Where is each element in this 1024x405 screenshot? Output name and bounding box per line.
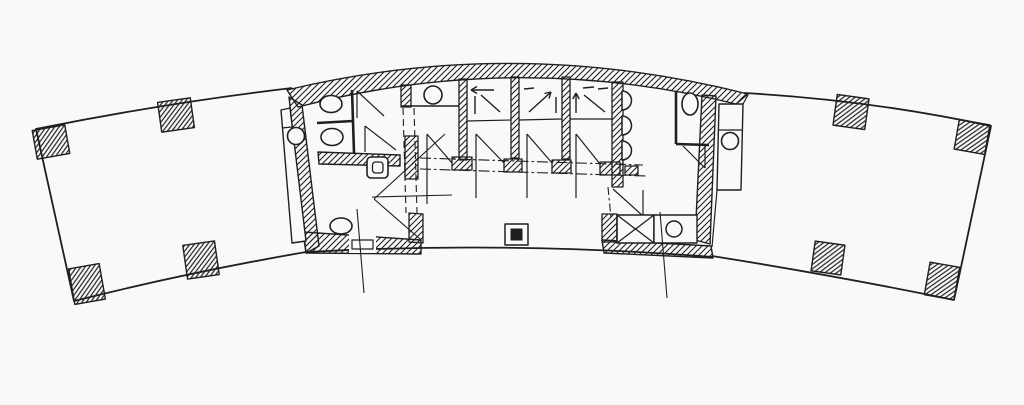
structural-column <box>32 125 70 159</box>
pier-lobby-west <box>405 136 418 179</box>
pier-service-room <box>401 85 411 107</box>
elevator-arrow <box>583 87 594 88</box>
structural-column <box>833 94 869 129</box>
floor-plan-svg <box>0 0 1024 405</box>
floor-plan <box>0 0 1024 405</box>
elevator-door-swing <box>576 134 600 164</box>
core-east-wall <box>695 95 716 244</box>
elevator-pier <box>459 79 467 160</box>
structural-column <box>924 262 959 300</box>
elevator-door-swing <box>527 134 552 163</box>
structural-column <box>183 241 219 279</box>
wall-return <box>625 166 638 175</box>
round-column <box>288 128 305 145</box>
door-jamb <box>452 157 472 170</box>
floor-marker-inner <box>511 229 523 241</box>
elevator-pier <box>562 77 570 159</box>
pier-lobby-south <box>409 213 423 243</box>
door-jamb <box>600 162 620 175</box>
elevator-arrow <box>529 92 551 112</box>
urinal <box>622 91 632 110</box>
door-swing <box>365 126 396 150</box>
elevator-arrow <box>584 95 605 112</box>
accessible-toilet <box>330 218 352 234</box>
door-threshold <box>352 240 373 249</box>
structural-column <box>158 98 195 132</box>
elevator-arrow <box>481 95 500 112</box>
round-column <box>722 133 739 150</box>
elevator-pier <box>511 77 519 158</box>
door-jamb <box>504 159 522 172</box>
elevator-arrow <box>524 88 534 89</box>
door-swing <box>357 91 384 116</box>
structural-column <box>954 120 990 155</box>
stall-partition <box>317 121 353 123</box>
toilet <box>321 129 343 146</box>
mop-sink <box>367 157 388 178</box>
door-jamb <box>552 160 571 173</box>
toilet <box>682 93 698 115</box>
structural-column <box>811 241 845 275</box>
stall-partition <box>676 144 709 145</box>
construction-line <box>372 195 452 197</box>
elevator-car-line <box>467 120 511 121</box>
structural-column <box>69 264 106 305</box>
door-swing <box>613 189 643 216</box>
elevator-door-swing <box>476 134 504 163</box>
elevator-car-line <box>519 119 562 120</box>
elevator-arrow <box>598 88 608 89</box>
east-strip-bottom-link <box>712 190 717 247</box>
urinal <box>622 141 632 160</box>
plan-shapes <box>32 63 991 304</box>
toilet <box>320 96 342 113</box>
pier-duct <box>602 214 617 242</box>
wash-basin <box>424 86 442 104</box>
urinal <box>622 116 632 135</box>
